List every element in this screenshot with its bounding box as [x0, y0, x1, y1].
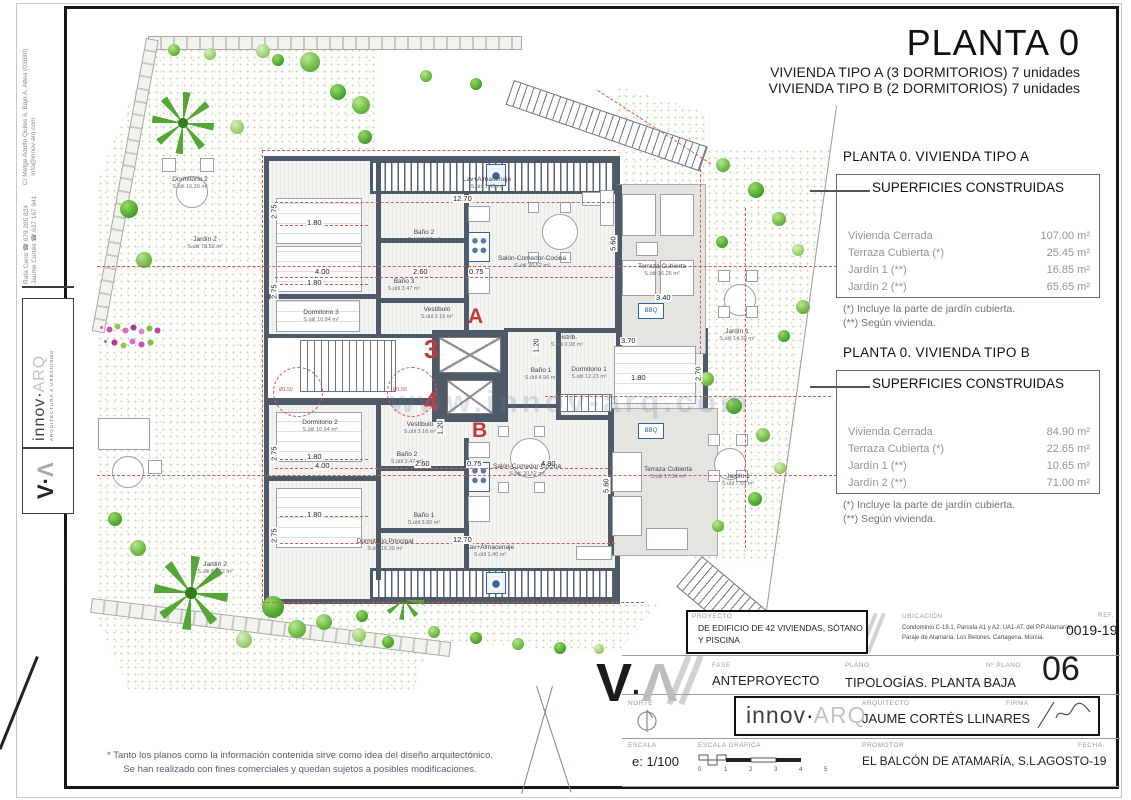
contact-address: C/ Metge Adolfo Quiles 6, Bajo A, Altea …	[22, 48, 30, 185]
chair	[534, 482, 545, 493]
plant	[204, 48, 216, 60]
plant	[554, 642, 566, 654]
arquitecto-label: ARQUITECTO	[862, 700, 910, 707]
dimension-label: 5.60	[603, 477, 611, 494]
dimension-label: 2.60	[412, 268, 429, 276]
table-row-label: Vivienda Cerrada	[848, 426, 933, 438]
plant	[748, 492, 762, 506]
dimension-label: 2.75	[271, 283, 279, 300]
plant	[470, 78, 482, 90]
washer-icon	[486, 572, 506, 594]
dimension-label: 0.75	[466, 460, 483, 468]
panel-a-heading: PLANTA 0. VIVIENDA TIPO A	[843, 149, 1029, 164]
plant	[316, 614, 332, 630]
subtitle-tipo-a: VIVIENDA TIPO A (3 DORMITORIOS) 7 unidad…	[769, 64, 1080, 80]
table-row-value: 84.90 m²	[1006, 426, 1090, 438]
panel-a-box-title: SUPERFICIES CONSTRUIDAS	[837, 180, 1099, 195]
room-label: Dormitorio 2S.útil 10.94 m²	[275, 419, 365, 434]
plant	[772, 212, 786, 226]
chair	[708, 434, 720, 446]
sink	[468, 206, 490, 222]
elevator-cab	[439, 337, 501, 373]
room-label: Salón-Comedor-CocinaS.útil 30.52 m²	[482, 463, 572, 478]
disclaimer-line-2: Se han realizado con fines comerciales y…	[70, 764, 530, 775]
sofa	[576, 546, 612, 560]
room-label: Distrib.S.útil 0.98 m²	[522, 334, 612, 349]
watermark: www.innov-arq.com	[336, 384, 806, 420]
table-row-value: 16.85 m²	[1006, 264, 1090, 276]
panel-b-footnote-1: (*) Incluye la parte de jardín cubierta.	[843, 499, 1015, 511]
plant	[262, 596, 284, 618]
plant	[358, 130, 372, 144]
plant	[512, 638, 524, 650]
dimension-label: 3.40	[655, 294, 672, 302]
room-label: Lav+AlmacenajeS.útil 1.40 m²	[442, 176, 532, 191]
dimension-label: 3.70	[620, 337, 637, 345]
divider	[622, 738, 1120, 739]
arquitecto-value: JAUME CORTÉS LLINARES	[862, 711, 1030, 726]
room-label: Baño 1S.útil 3.90 m²	[379, 512, 469, 527]
chair	[746, 306, 758, 318]
subtitle-tipo-b: VIVIENDA TIPO B (2 DORMITORIOS) 7 unidad…	[769, 80, 1080, 96]
dimension-label: 1.80	[306, 453, 323, 461]
dining-table	[542, 214, 578, 250]
chair	[736, 434, 748, 446]
contact-phone-1: Rafa Cano ☎ 679 285 824	[22, 205, 30, 284]
nplano-label: Nº PLANO	[986, 662, 1021, 669]
plant	[288, 620, 306, 638]
panel-a-footnote-1: (*) Incluye la parte de jardín cubierta.	[843, 303, 1015, 315]
room-label: Dormitorio 2S.útil 16.30 m²	[145, 176, 235, 191]
plant	[330, 84, 346, 100]
fase-value: ANTEPROYECTO	[712, 673, 819, 688]
chair	[200, 158, 214, 172]
sidebar-logo-box: innov·ARQ ARQUITECTURA e URBANISMO V·Λ	[22, 298, 74, 514]
contact-email: info@innov-arq.com	[30, 117, 38, 175]
wall	[378, 528, 468, 533]
dimension-line	[280, 225, 368, 226]
lounge-chair	[660, 194, 694, 236]
ref-label: REF.	[1098, 612, 1114, 619]
svg-text:3: 3	[774, 767, 778, 773]
svg-text:5: 5	[824, 767, 828, 773]
garden-table	[112, 456, 144, 488]
property-line	[700, 164, 701, 354]
ubicacion-label: UBICACIÓN	[902, 613, 943, 620]
property-line	[262, 150, 263, 602]
side-table	[636, 242, 658, 256]
table-row-value: 10.65 m²	[1006, 460, 1090, 472]
property-line	[262, 602, 644, 603]
chair	[718, 306, 730, 318]
lounge-chair	[98, 418, 150, 450]
dimension-line	[280, 284, 368, 285]
table-row-value: 22.65 m²	[1006, 443, 1090, 455]
chair	[162, 158, 176, 172]
dimension-line	[280, 459, 368, 460]
plant	[236, 632, 252, 648]
plant	[716, 236, 728, 248]
disclaimer-line-1: * Tanto los planos como la información c…	[70, 750, 530, 761]
proyecto-label: PROYECTO	[692, 613, 732, 620]
panel-b-tab-line	[810, 386, 870, 388]
plant	[420, 70, 432, 82]
fecha-label: FECHA	[1078, 742, 1103, 749]
wall	[378, 298, 468, 303]
room-label: Lav+AlmacenajeS.útil 1.40 m²	[445, 544, 535, 559]
plant	[108, 512, 122, 526]
panel-b-box-title: SUPERFICIES CONSTRUIDAS	[837, 376, 1099, 391]
sidebar-divider	[22, 286, 74, 288]
nplano-value: 06	[1042, 650, 1080, 689]
chair	[528, 202, 539, 213]
plant	[716, 158, 730, 172]
logo-box-divider	[23, 447, 73, 449]
lounge-chair	[612, 496, 642, 536]
room-label: Baño 2S.útil 3.90 m²	[379, 229, 469, 244]
wall	[376, 160, 381, 336]
stone-wall-top	[148, 36, 522, 50]
flower-bed	[100, 326, 103, 329]
plant	[352, 96, 370, 114]
chair	[498, 482, 509, 493]
dimension-line	[280, 516, 368, 517]
svg-text:1: 1	[724, 767, 728, 773]
wall	[268, 476, 378, 481]
lounge-chair	[622, 194, 656, 236]
table-row-value: 65.65 m²	[1006, 281, 1090, 293]
table-row-label: Terraza Cubierta (*)	[848, 443, 944, 455]
proyecto-line2: Y PISCINA	[698, 634, 740, 647]
palm-plant	[152, 92, 214, 154]
stair-core-3-mark: 3	[424, 336, 438, 362]
escala-grafica-label: ESCALA GRÁFICA	[698, 742, 761, 749]
signature	[1024, 698, 1094, 732]
ubicacion-line1: Condominio C-19.1, Parcela A1 y A2. UA1-…	[902, 624, 1072, 633]
ubicacion-line2: Paraje de Atamaría. Los Belones. Cartage…	[902, 634, 1044, 643]
room-label: Baño 2S.útil 3.47 m²	[362, 451, 452, 466]
room-label: Jardín 2S.útil 78.52 m²	[160, 236, 250, 251]
panel-b-footnote-2: (**) Según vivienda.	[843, 513, 936, 525]
flower-bed	[104, 340, 107, 343]
innovarq-logo: innov·ARQ	[746, 702, 867, 729]
dimension-label: 12.70	[452, 536, 473, 544]
plant	[792, 244, 804, 256]
svg-text:2: 2	[749, 767, 753, 773]
panel-a-tab-line	[810, 190, 870, 192]
sidebar-va-mark: V·Λ	[33, 462, 59, 499]
diameter-label: Ø1.50	[279, 388, 293, 393]
chair	[560, 202, 571, 213]
kitchen-unit	[468, 496, 490, 522]
fecha-value: AGOSTO-19	[1038, 754, 1106, 768]
bbq-box: BBQ	[638, 303, 664, 319]
dimension-line	[97, 266, 837, 267]
plant	[168, 44, 180, 56]
table-row-label: Jardín 2 (**)	[848, 477, 907, 489]
title-block-top: PLANTA 0 VIVIENDA TIPO A (3 DORMITORIOS)…	[769, 22, 1080, 96]
plant	[352, 628, 366, 642]
dimension-label: 2.75	[271, 445, 279, 462]
svg-text:4: 4	[799, 767, 803, 773]
room-label: Dormitorio PrincipalS.útil 16.30 m²	[340, 538, 430, 553]
plant	[356, 610, 368, 622]
plant	[230, 120, 244, 134]
room-label: Jardín 2S.útil 64.22 m²	[170, 561, 260, 576]
fase-label: FASE	[712, 662, 731, 669]
unit-b-mark: B	[472, 420, 487, 441]
va-logo: V·Λ	[596, 652, 677, 714]
dimension-label: 1.80	[306, 511, 323, 519]
plant	[256, 44, 270, 58]
dimension-label: 2.75	[271, 527, 279, 544]
svg-text:0: 0	[698, 767, 702, 773]
room-label: Jardín 1S.útil 14.39 m²	[692, 328, 782, 343]
ref-value: 0019-19	[1066, 622, 1117, 638]
graphic-scale-bar: 0 1 2 3 4 5	[698, 752, 848, 774]
room-label: Terraza CubiertaS.útil 16.26 m²	[617, 263, 707, 278]
chair	[718, 270, 730, 282]
room-label: Jardín 1S.útil 7.65 m²	[693, 473, 783, 488]
divider	[622, 694, 1120, 695]
promotor-label: PROMOTOR	[862, 742, 904, 749]
sofa	[646, 528, 688, 550]
divider	[622, 786, 1120, 787]
wall	[268, 294, 378, 299]
unit-a-mark: A	[468, 306, 483, 327]
plant	[300, 52, 320, 72]
dimension-label: 4.00	[314, 268, 331, 276]
room-label: Salón-Comedor-CocinaS.útil 30.52 m²	[487, 255, 577, 270]
dimension-label: 5.60	[610, 235, 618, 252]
room-label: Dormitorio 3S.útil 10.94 m²	[276, 309, 366, 324]
dimension-label: 2.75	[271, 203, 279, 220]
property-line	[745, 208, 746, 548]
table-row-value: 107.00 m²	[1006, 230, 1090, 242]
chair	[148, 460, 162, 474]
table-row-value: 71.00 m²	[1006, 477, 1090, 489]
table-row-label: Terraza Cubierta (*)	[848, 247, 944, 259]
plant	[712, 520, 724, 532]
escala-value: e: 1/100	[632, 754, 679, 769]
sidebar-contact: Rafa Cano ☎ 679 285 824C/ Metge Adolfo Q…	[22, 22, 38, 284]
table-row-label: Jardín 1 (**)	[848, 264, 907, 276]
table-row-value: 25.45 m²	[1006, 247, 1090, 259]
plano-label: PLANO	[845, 662, 870, 669]
promotor-value: EL BALCÓN DE ATAMARÍA, S.L.	[862, 754, 1039, 768]
chair	[534, 426, 545, 437]
plant	[756, 428, 770, 442]
plant	[382, 636, 394, 648]
plant	[748, 182, 764, 198]
sidebar-logo: innov·ARQ ARQUITECTURA e URBANISMO	[31, 305, 54, 441]
table-row-label: Jardín 1 (**)	[848, 460, 907, 472]
chair	[746, 270, 758, 282]
dimension-label: 0.75	[468, 268, 485, 276]
dimension-label: 1.80	[306, 219, 323, 227]
property-line	[262, 150, 616, 151]
dimension-label: 4.00	[314, 462, 331, 470]
plant	[428, 626, 440, 638]
sink	[468, 442, 490, 458]
plan-sheet: PLANTA 0 VIVIENDA TIPO A (3 DORMITORIOS)…	[0, 0, 1131, 800]
plant	[120, 200, 138, 218]
table-row-label: Jardín 2 (**)	[848, 281, 907, 293]
sidebar-tick	[64, 540, 67, 585]
proyecto-line1: DE EDIFICIO DE 42 VIVIENDAS, SÓTANO	[698, 622, 863, 635]
contact-phone-2: Jaume Cortés ☎ 637 167 941	[30, 196, 38, 284]
page-title: PLANTA 0	[769, 22, 1080, 64]
room-label: Dormitorio 1S.útil 12.23 m²	[544, 366, 634, 381]
bbq-box: BBQ	[638, 423, 664, 439]
plant	[130, 540, 146, 556]
panel-b-heading: PLANTA 0. VIVIENDA TIPO B	[843, 345, 1030, 360]
room-label: Baño 3S.útil 3.47 m²	[359, 278, 449, 293]
plano-value: TIPOLOGÍAS. PLANTA BAJA	[845, 675, 1016, 690]
panel-a-footnote-2: (**) Según vivienda.	[843, 317, 936, 329]
sofa	[600, 190, 614, 226]
room-label: VestíbuloS.útil 3.16 m²	[375, 421, 465, 436]
table-row-label: Vivienda Cerrada	[848, 230, 933, 242]
dimension-label: 1.80	[306, 279, 323, 287]
dimension-line	[275, 202, 615, 203]
plant	[272, 54, 284, 66]
dimension-label: 2.70	[695, 365, 703, 382]
chair	[498, 426, 509, 437]
plant	[470, 632, 482, 644]
dimension-label: 12.70	[452, 195, 473, 203]
sidebar-tagline: ARQUITECTURA e URBANISMO	[49, 305, 54, 441]
escala-label: ESCALA	[628, 742, 657, 749]
